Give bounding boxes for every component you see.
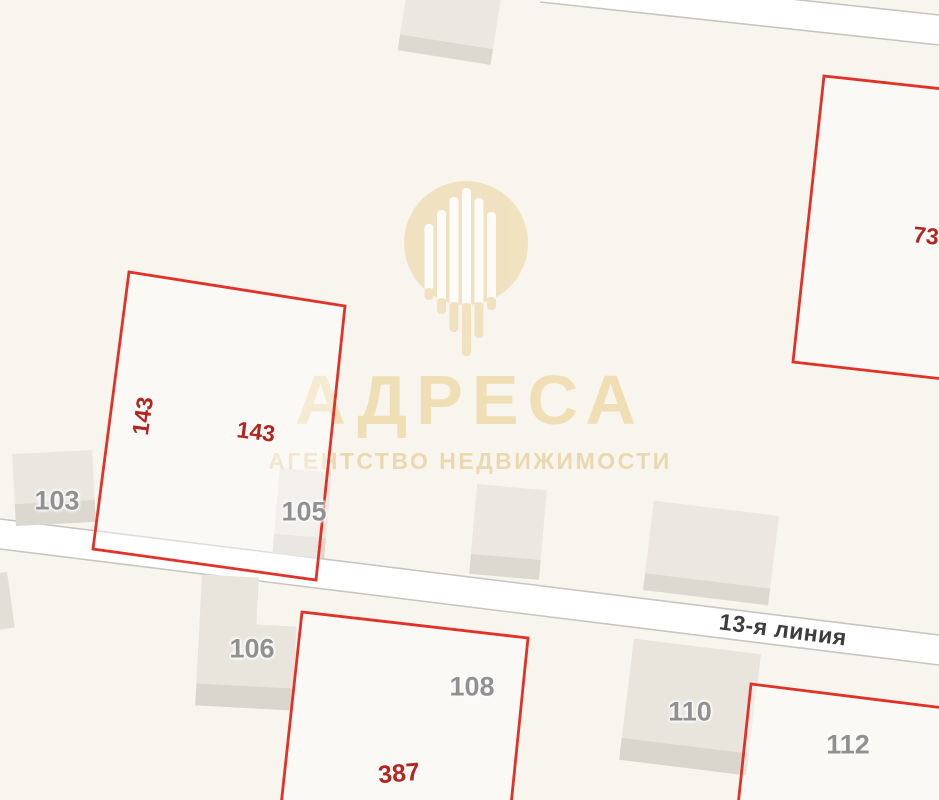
- building-110: [619, 639, 761, 776]
- parcel-112-outline[interactable]: [737, 684, 939, 800]
- parcel-73-outline[interactable]: [793, 76, 939, 380]
- building-sliver-left: [0, 572, 15, 630]
- building-106: [195, 575, 299, 711]
- building-east: [643, 501, 779, 606]
- road-top-right: [540, 0, 939, 45]
- watermark-brand: АДРЕСА: [295, 361, 645, 439]
- map-viewport[interactable]: АДРЕСА АГЕНТСТВО НЕДВИЖИМОСТИ 13-я линия…: [0, 0, 939, 800]
- building-103: [12, 450, 96, 526]
- building-center: [469, 484, 547, 580]
- parcel-387-outline[interactable]: [280, 612, 528, 800]
- parcel-143-outline[interactable]: [93, 272, 345, 580]
- map-tiles: АДРЕСА АГЕНТСТВО НЕДВИЖИМОСТИ: [0, 0, 939, 800]
- watermark-logo: [404, 181, 528, 356]
- building-top: [398, 0, 503, 65]
